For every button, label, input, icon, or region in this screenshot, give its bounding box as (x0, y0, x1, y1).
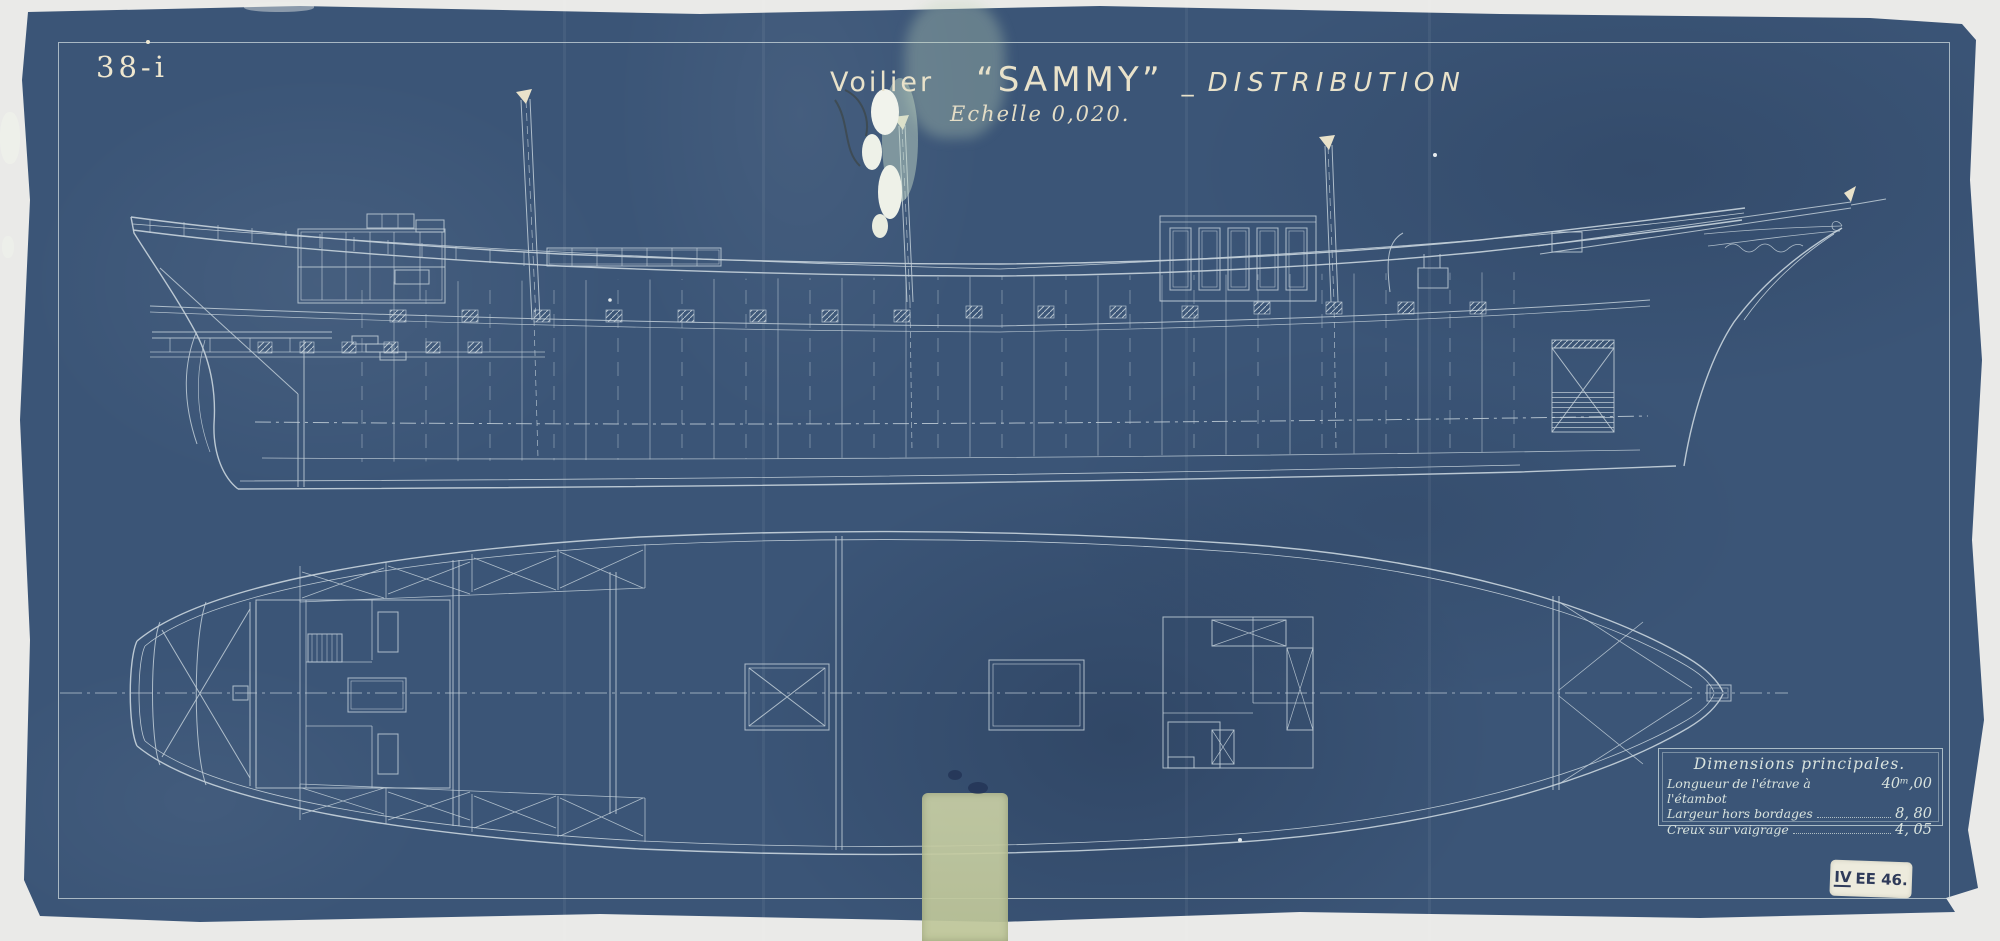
dimension-label: Largeur hors bordages (1667, 806, 1813, 821)
sheet-number: 38-i (96, 50, 168, 84)
title-vessel-type: Voilier (830, 67, 934, 98)
plan-aft-cabin (256, 600, 450, 788)
title-subject: DISTRIBUTION (1208, 68, 1466, 98)
archive-label: IV EE 46. (1829, 860, 1912, 899)
bow-ornament (1704, 222, 1842, 253)
ink-spot (968, 782, 988, 794)
plan-stern-frames (153, 602, 257, 786)
archive-label-roman: IV (1834, 869, 1852, 887)
title-separator: _ (1182, 69, 1194, 97)
blueprint-scan: 38-i Voilier “SAMMY” _ DISTRIBUTION Eche… (0, 0, 2000, 941)
dimension-value: 8, 80 (1895, 807, 1932, 822)
bowsprit (1538, 186, 1886, 254)
hull-frames (356, 272, 1530, 462)
dotted-leader (1793, 833, 1891, 834)
paper-chip (244, 2, 314, 12)
drawing-title: Voilier “SAMMY” _ DISTRIBUTION (830, 60, 1466, 100)
dotted-leader (1817, 817, 1891, 818)
ink-spot (948, 770, 962, 780)
dimension-label: Creux sur vaigrage (1667, 822, 1789, 837)
archive-label-code: EE 46. (1855, 869, 1908, 889)
plan-forward-hatch (989, 660, 1084, 730)
plan-main-hatch (745, 664, 829, 730)
scale-note: Echelle 0,020. (950, 102, 1130, 126)
table-row: Creux sur vaigrage 4, 05 (1667, 822, 1932, 838)
dimension-value: 4, 05 (1895, 823, 1932, 838)
paper-chip (2, 236, 14, 258)
table-row: Longueur de l'étrave à l'étambot 40ᵐ,00 (1667, 776, 1932, 806)
side-elevation-view (131, 89, 1886, 489)
dimensions-table-title: Dimensions principales. (1667, 755, 1932, 773)
deck-plan-view (60, 532, 1788, 855)
dimension-label: Longueur de l'étrave à l'étambot (1667, 776, 1874, 806)
table-row: Largeur hors bordages 8, 80 (1667, 806, 1932, 822)
paper-chip (0, 112, 20, 164)
dimensions-table: Dimensions principales. Longueur de l'ét… (1658, 748, 1943, 826)
dimension-value: 40ᵐ,00 (1882, 777, 1932, 792)
title-vessel-name: “SAMMY” (976, 60, 1164, 100)
chain-locker (1552, 340, 1614, 432)
